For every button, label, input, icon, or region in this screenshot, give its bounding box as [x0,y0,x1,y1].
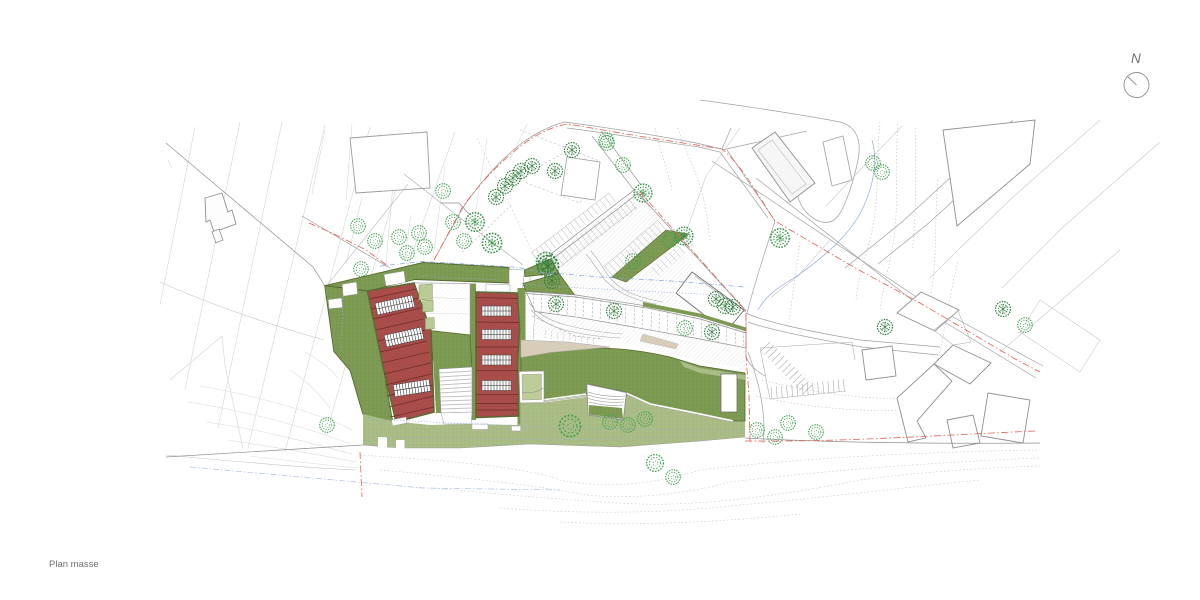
svg-text:N: N [1131,51,1141,66]
svg-text:Plan masse: Plan masse [49,559,99,570]
